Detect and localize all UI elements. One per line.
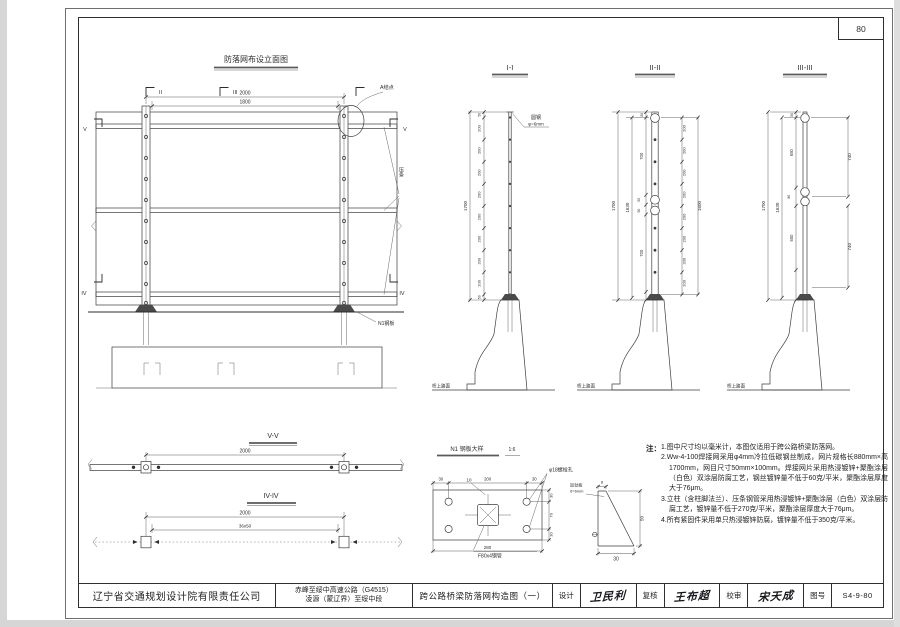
seg-dim: 200 — [477, 147, 482, 154]
mid-dim: 50 — [637, 209, 641, 213]
drawing-canvas: 防落网布设立面图 2000 1800 — [0, 0, 900, 627]
iviv-dim-inner: 36x50 — [239, 524, 252, 529]
seg-dim: 200 — [477, 235, 482, 242]
wire-label: 圆钢 — [531, 114, 541, 121]
total-right: 1600 — [697, 200, 702, 211]
clamp-bolts — [132, 466, 358, 469]
rail-tube-top — [651, 114, 660, 123]
section-iii-title: III-III — [798, 63, 813, 72]
section-i-i: I-I 圆钢 φ=6mm 50 200 200 200 200 200 200 … — [432, 63, 555, 390]
section-i-title: I-I — [507, 63, 514, 72]
total-inner: 1630 — [775, 202, 780, 213]
section-iii-iii: III-III 1700 1630 50 650 80 650 740 740 — [727, 63, 852, 390]
rail-callout: 压条 — [398, 167, 404, 177]
anchor-plate — [646, 294, 664, 300]
drawing-number: S4-9-80 — [831, 584, 883, 607]
vv-title: V-V — [267, 433, 279, 440]
seg-dim: 200 — [477, 257, 482, 264]
seg-dim: 200 — [477, 213, 482, 220]
marker-iii: III — [233, 90, 238, 96]
total-inner: 1630 — [625, 202, 630, 213]
mid-dim: 50 — [637, 198, 641, 202]
seg-dim: 200 — [477, 191, 482, 198]
elevation-dim-inner: 1800 — [239, 100, 250, 106]
post-plan-right — [339, 536, 349, 548]
right-dim: 200 — [682, 213, 687, 220]
tube-label: F80x4钢管 — [478, 553, 502, 560]
gusset-detail: 加劲板 δ=6mm 8 50 30 — [570, 480, 645, 563]
company-name: 辽宁省交通规划设计院有限责任公司 — [79, 584, 275, 607]
ground-label: 桥上路面 — [432, 383, 450, 390]
barrier-profile — [467, 300, 527, 390]
seg-dim: 200 — [477, 169, 482, 176]
detail-scale: 1:6 — [509, 447, 516, 453]
deck-band — [112, 347, 382, 388]
rail-tube-mid2 — [651, 206, 660, 215]
marker-ii: II — [159, 90, 163, 96]
plate-dim-right: 30 — [549, 532, 554, 537]
gusset-label-1: 加劲板 — [570, 482, 583, 489]
elevation-title: 防落网布设立面图 — [224, 54, 288, 64]
anchor-plate — [501, 294, 519, 300]
title-block: 辽宁省交通规划设计院有限责任公司 赤峰至绥中高速公路（G4515） 凌源（蒙辽界… — [78, 583, 884, 608]
right-dim: 200 — [682, 124, 687, 131]
project-line-2: 凌源（蒙辽界）至绥中段 — [305, 596, 382, 605]
seg-dim: 50 — [478, 113, 482, 117]
gusset-dim-top: 8 — [601, 480, 604, 485]
marker-v-left: V — [83, 127, 87, 133]
review-label: 校审 — [719, 584, 747, 607]
notes-heading: 注： — [646, 443, 661, 526]
mid-dim: 50 — [640, 113, 644, 117]
note-item: 3.立柱（含柱脚法兰）、压条钢管采用热浸镀锌+聚酯涂层（白色）双涂层防腐工艺，镀… — [661, 495, 888, 516]
project-name: 赤峰至绥中高速公路（G4515） 凌源（蒙辽界）至绥中段 — [275, 584, 413, 607]
bottom-section-marks — [144, 363, 354, 375]
base-plate-right — [333, 305, 355, 313]
plate-dim-top: 30 — [532, 477, 537, 482]
total-dim: 1700 — [463, 200, 468, 211]
rail-tube-mid2 — [801, 197, 810, 206]
plate-dim-right: 30 — [549, 493, 554, 498]
node-a-label: A结点 — [380, 83, 394, 91]
section-ii-ii: II-II 1700 1630 50 700 50 50 700 — [577, 63, 702, 390]
plate-thickness: 10 — [466, 478, 472, 483]
vv-dim: 2000 — [239, 449, 250, 455]
mid-dim: 700 — [639, 249, 644, 257]
project-line-1: 赤峰至绥中高速公路（G4515） — [295, 587, 393, 596]
bolt-hole-label: φ18螺栓孔 — [549, 467, 573, 474]
right-dim: 200 — [682, 191, 687, 198]
plate-dim-right: 70 — [549, 512, 554, 517]
right-dim: 740 — [847, 242, 852, 250]
rail-tube-mid1 — [651, 195, 660, 204]
note-item: 1.图中尺寸均以毫米计，本图仅适用于跨公路桥梁防落网。 — [661, 443, 888, 453]
section-ii-title: II-II — [650, 63, 661, 72]
seg-dim: 200 — [477, 124, 482, 131]
view-v-v: V-V 2000 — [88, 433, 404, 473]
mid-dim: 80 — [787, 195, 791, 199]
anchor-plate — [796, 294, 814, 300]
post-bolts — [144, 114, 345, 304]
notes-block: 注： 1.图中尺寸均以毫米计，本图仅适用于跨公路桥梁防落网。 2.Ww-4-10… — [646, 443, 888, 526]
post-plan-left — [141, 536, 151, 548]
iviv-title: IV-IV — [263, 493, 279, 500]
marker-v-right: V — [403, 127, 407, 133]
plate-dim-bottom: 280 — [484, 545, 492, 550]
n1-plate-callout: N1钢板 — [378, 320, 394, 327]
rail-middle — [96, 208, 397, 213]
gusset-dim-right: 50 — [640, 516, 645, 522]
total-outer: 1700 — [611, 200, 616, 211]
marker-iv-left: IV — [81, 291, 87, 297]
note-item: 2.Ww-4-100焊接网采用φ4mm冷拉低碳钢丝制成，网片规格长880mm×高… — [661, 453, 888, 494]
plate-dim-top: 200 — [484, 477, 492, 482]
drawing-number-label: 图号 — [803, 584, 831, 607]
wire-dia-label: φ=6mm — [528, 122, 544, 127]
mid-dim: 650 — [789, 234, 794, 242]
elevation-view: 防落网布设立面图 2000 1800 — [81, 54, 407, 388]
seg-dim: 200 — [477, 279, 482, 286]
n1-plate-detail: N1 钢板大样 1:6 30 200 30 280 30 70 3 — [431, 445, 573, 560]
right-dim: 200 — [682, 147, 687, 154]
gusset-label-2: δ=6mm — [570, 489, 584, 494]
right-dim: 200 — [682, 169, 687, 176]
rail-bottom — [96, 292, 397, 297]
mid-dim: 50 — [790, 113, 794, 117]
drawing-sheet: 80 防落网布设立面图 2000 1800 — [0, 0, 900, 627]
total-outer: 1700 — [761, 200, 766, 211]
check-signature: 王布超 — [664, 584, 720, 607]
design-label: 设计 — [552, 584, 580, 607]
review-signature: 宋天成 — [747, 584, 803, 607]
right-dim: 200 — [682, 279, 687, 286]
mid-dim: 650 — [789, 148, 794, 156]
ground-label: 桥上路面 — [727, 383, 745, 390]
view-iv-iv: IV-IV 2000 36x50 — [93, 493, 402, 548]
rail-tube-mid1 — [801, 188, 810, 197]
elevation-dim-outer: 2000 — [239, 91, 250, 97]
note-item: 4.所有紧固件采用单只热浸镀锌防腐，镀锌量不低于350克/平米。 — [661, 516, 888, 526]
barrier-profile — [612, 300, 672, 390]
rail-tube-top — [801, 114, 810, 123]
ground-label: 桥上路面 — [577, 383, 595, 390]
drawing-title: 跨公路桥梁防落网构造图（一） — [412, 584, 552, 607]
marker-iv-right: IV — [399, 291, 405, 297]
rail-top — [96, 124, 397, 129]
detail-title: N1 钢板大样 — [450, 445, 483, 453]
right-dim: 740 — [847, 153, 852, 161]
gusset-dim-bottom: 30 — [613, 557, 619, 563]
iviv-dim-outer: 2000 — [239, 511, 250, 517]
right-dim: 200 — [682, 257, 687, 264]
check-label: 复核 — [636, 584, 664, 607]
mesh-panel — [96, 112, 397, 305]
plate-dim-top: 30 — [438, 477, 443, 482]
base-plate-left — [135, 305, 157, 313]
barrier-profile — [762, 300, 822, 390]
design-signature: 卫民利 — [580, 584, 636, 607]
seg-dim: 50 — [478, 295, 482, 299]
mesh-cross-wires — [509, 116, 511, 295]
mid-dim: 700 — [639, 152, 644, 160]
right-dim: 200 — [682, 235, 687, 242]
